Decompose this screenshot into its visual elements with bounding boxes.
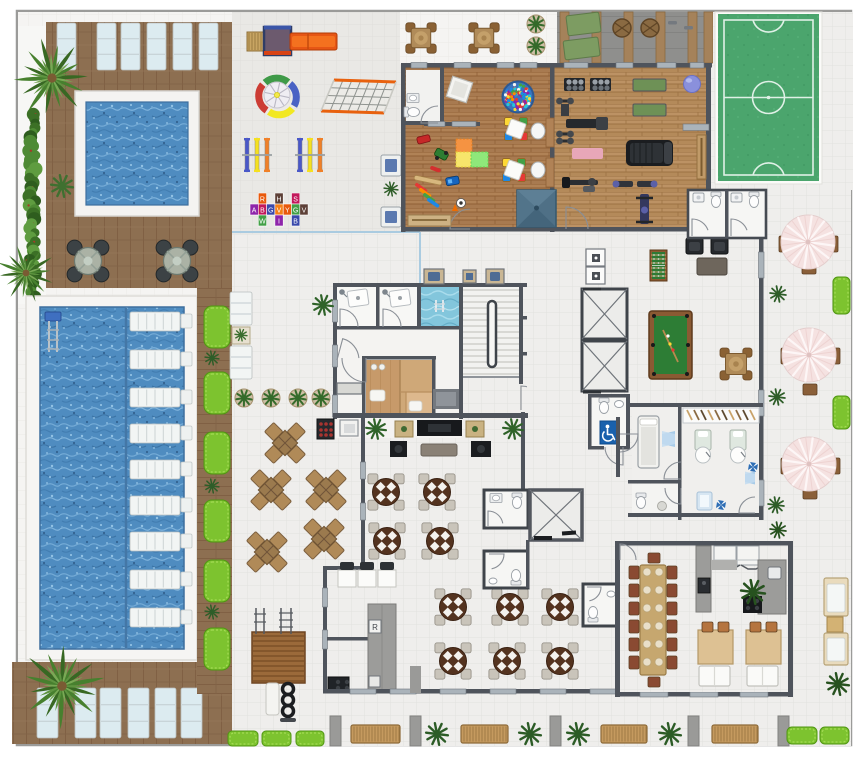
svg-text:V: V (277, 207, 282, 214)
svg-text:G: G (293, 207, 298, 214)
svg-text:B: B (293, 218, 298, 225)
svg-text:G: G (268, 207, 273, 214)
svg-text:R: R (260, 196, 265, 203)
svg-text:I: I (278, 218, 280, 225)
svg-text:B: B (260, 207, 265, 214)
svg-text:R: R (372, 623, 378, 632)
svg-text:V: V (302, 207, 307, 214)
svg-text:A: A (252, 207, 257, 214)
svg-text:H: H (276, 196, 281, 203)
svg-text:S: S (293, 196, 298, 203)
svg-text:W: W (259, 218, 266, 225)
svg-text:Y: Y (285, 207, 290, 214)
